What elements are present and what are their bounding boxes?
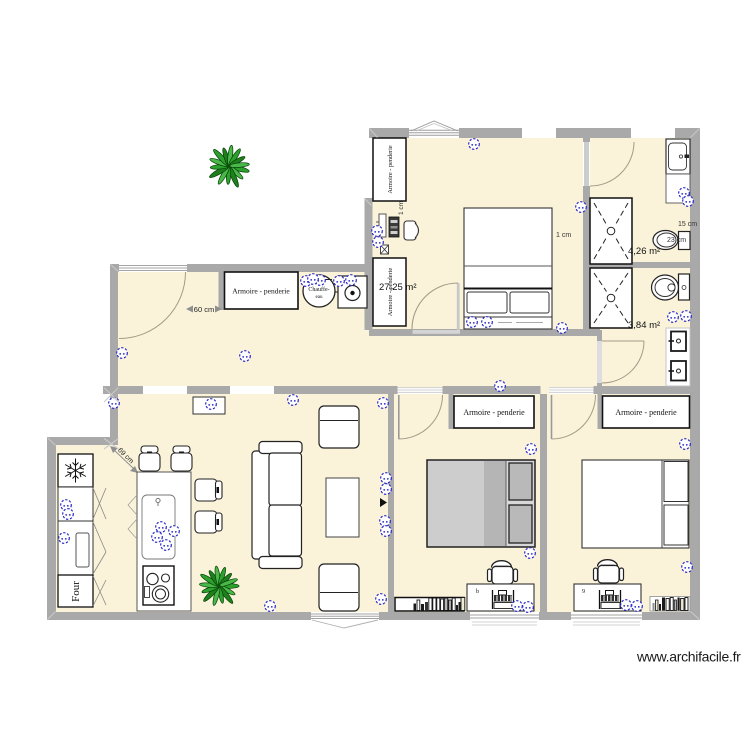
svg-text:1 cm: 1 cm — [556, 232, 571, 239]
svg-text:www.archifacile.fr: www.archifacile.fr — [636, 649, 741, 665]
svg-text:1 cm: 1 cm — [398, 201, 405, 215]
svg-text:b: b — [476, 589, 479, 595]
svg-text:Armoire - penderie: Armoire - penderie — [387, 145, 394, 193]
svg-text:Armoire - penderie: Armoire - penderie — [463, 408, 525, 417]
svg-text:Armoire - penderie: Armoire - penderie — [232, 287, 290, 296]
svg-text:9: 9 — [582, 589, 585, 595]
svg-text:15 cm: 15 cm — [678, 221, 697, 228]
svg-text:3,84 m²: 3,84 m² — [628, 320, 660, 331]
svg-text:Chauffe-: Chauffe- — [308, 286, 329, 293]
svg-text:27,25 m²: 27,25 m² — [379, 282, 417, 293]
svg-text:60 cm: 60 cm — [194, 305, 214, 314]
svg-text:Armoire - penderie: Armoire - penderie — [615, 408, 677, 417]
svg-text:eau: eau — [316, 295, 323, 300]
svg-text:4,26 m²: 4,26 m² — [628, 246, 660, 257]
svg-text:Four: Four — [70, 581, 82, 602]
svg-text:23 cm: 23 cm — [667, 237, 686, 244]
